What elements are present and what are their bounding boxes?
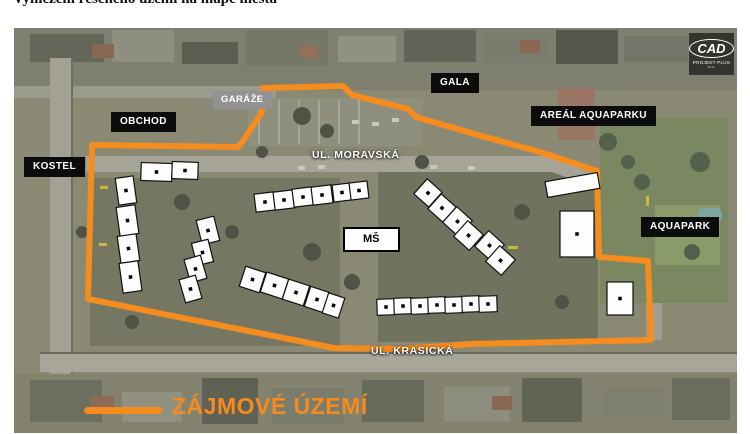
page-title: Vymezení řešeného území na mapě města bbox=[13, 0, 277, 8]
building-dot bbox=[301, 195, 305, 199]
building-dot bbox=[127, 247, 131, 251]
aerial-map: GARÁŽE OBCHOD GALA AREÁL AQUAPARKU KOSTE… bbox=[14, 28, 737, 433]
building-dot bbox=[129, 275, 133, 279]
building-dot bbox=[263, 200, 267, 204]
label-ul-moravska: UL. MORAVSKÁ bbox=[312, 150, 400, 161]
label-ul-krasicka: UL. KRASICKÁ bbox=[371, 346, 453, 357]
building-dot bbox=[618, 297, 622, 301]
cad-logo-subsubtext: s.r.o. bbox=[708, 65, 716, 69]
building-dot bbox=[418, 304, 422, 308]
label-areal-aquaparku: AREÁL AQUAPARKU bbox=[531, 106, 656, 126]
building-dot bbox=[320, 193, 324, 197]
building-dot bbox=[357, 189, 361, 193]
building-dot bbox=[575, 232, 579, 236]
label-obchod: OBCHOD bbox=[111, 112, 176, 132]
building-dot bbox=[452, 303, 456, 307]
building-dot bbox=[435, 303, 439, 307]
legend-label: ZÁJMOVÉ ÚZEMÍ bbox=[172, 393, 368, 420]
cad-logo-mark: CAD bbox=[689, 39, 733, 58]
building-dot bbox=[340, 191, 344, 195]
building-dot bbox=[469, 302, 473, 306]
label-kostel: KOSTEL bbox=[24, 157, 85, 177]
building-dot bbox=[401, 304, 405, 308]
label-aquapark: AQUAPARK bbox=[641, 217, 719, 237]
label-garaze: GARÁŽE bbox=[213, 91, 272, 109]
building-dot bbox=[384, 305, 388, 309]
screenshot-root: Vymezení řešeného území na mapě města bbox=[0, 0, 750, 434]
cad-logo: CAD PROJEKT PLUS s.r.o. bbox=[689, 33, 734, 75]
label-gala: GALA bbox=[431, 73, 479, 93]
building-dot bbox=[155, 170, 159, 174]
legend-line-sample bbox=[84, 407, 162, 414]
building-dot bbox=[126, 219, 130, 223]
building-dot bbox=[486, 302, 490, 306]
building-dot bbox=[124, 189, 128, 193]
building-dot bbox=[183, 169, 187, 173]
label-ms: MŠ bbox=[343, 227, 400, 252]
building-dot bbox=[282, 198, 286, 202]
